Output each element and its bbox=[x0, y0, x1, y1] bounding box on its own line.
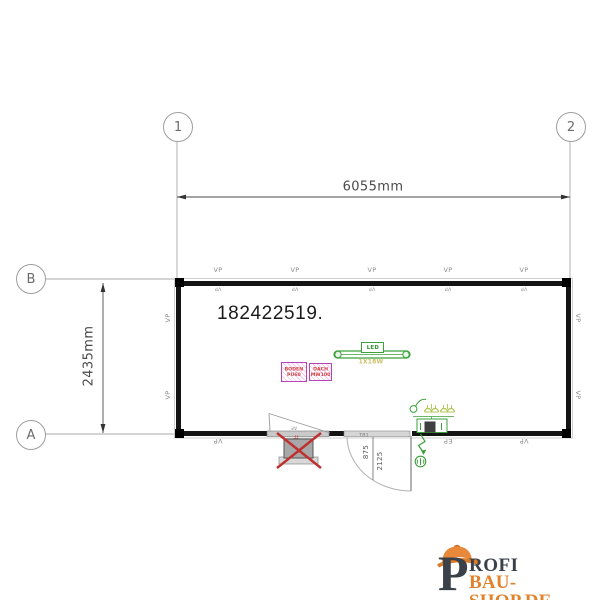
grid-label-A: A bbox=[27, 428, 36, 443]
dim-arrow-top bbox=[101, 283, 106, 292]
grid-label-B: B bbox=[27, 272, 36, 287]
socket-icons bbox=[425, 404, 455, 412]
wall-panel-label: VP bbox=[368, 266, 377, 274]
logo-domain: BAU-SHOP.DE bbox=[469, 573, 597, 600]
shop-logo: P ROFI BAU-SHOP.DE bbox=[435, 542, 597, 600]
window-tag: AF bbox=[291, 425, 297, 431]
grid-label-2: 2 bbox=[567, 120, 575, 135]
wall-panel-label-inner: VP bbox=[445, 286, 451, 292]
grid-bubble-2: 2 bbox=[556, 112, 586, 142]
wall-panel-label-inner: VP bbox=[521, 286, 527, 292]
wall-panel-label: VP bbox=[214, 266, 223, 274]
grid-bubble-1: 1 bbox=[163, 112, 193, 142]
wall-panel-label-inner: VP bbox=[369, 286, 375, 292]
earth-symbol-icon bbox=[415, 456, 426, 467]
wall-panel-label: VP bbox=[574, 391, 582, 400]
wall-panel-label: VP bbox=[520, 266, 529, 274]
logo-initial: P bbox=[438, 548, 469, 598]
order-number: 182422519. bbox=[217, 303, 323, 325]
led-label: LED bbox=[366, 344, 378, 350]
grid-bubble-A: A bbox=[16, 420, 46, 450]
switch-icon bbox=[410, 399, 426, 412]
wall-panel-label-inner: VP bbox=[215, 286, 221, 292]
grid-lines bbox=[44, 140, 570, 434]
roof-spec-line2: MW100 bbox=[311, 372, 331, 377]
electrical-panel-label: EP bbox=[444, 437, 453, 445]
width-dimension-text: 6055mm bbox=[343, 180, 404, 195]
door-tag: TB1 bbox=[359, 432, 369, 438]
roof-spec-box: DACH MW100 bbox=[309, 363, 332, 381]
dim-arrow-bottom bbox=[101, 424, 106, 433]
wall-panel-label-inner: VP bbox=[292, 286, 298, 292]
wall-panel-label: VP bbox=[214, 437, 223, 445]
dim-arrow-right bbox=[561, 195, 570, 200]
plan-linework bbox=[0, 0, 600, 600]
grid-bubble-B: B bbox=[16, 264, 46, 294]
height-dimension-text: 2435mm bbox=[82, 326, 97, 387]
door-width-text: 875 bbox=[362, 445, 370, 459]
wall-panel-label: VP bbox=[164, 314, 172, 323]
grid-label-1: 1 bbox=[174, 120, 182, 135]
power-feed-icon bbox=[419, 434, 427, 455]
floor-spec-line2: PU60 bbox=[285, 372, 304, 377]
led-label-box: LED bbox=[361, 342, 384, 353]
distribution-box-icon bbox=[417, 419, 447, 433]
wall-panel-label: VP bbox=[444, 266, 453, 274]
led-code: 1X18W bbox=[359, 359, 384, 366]
wall-panel-label: VP bbox=[520, 437, 529, 445]
floor-plan-drawing: 1 2 B A 6055mm 2435mm 182422519. VP VP V… bbox=[0, 0, 600, 600]
wall-panel-label: VP bbox=[164, 391, 172, 400]
floor-spec-box: BODEN PU60 bbox=[281, 362, 307, 382]
dim-arrow-left bbox=[177, 195, 186, 200]
window-tilt-symbol bbox=[269, 414, 330, 434]
door-height-text: 2125 bbox=[376, 451, 384, 470]
wall-panel-label: VP bbox=[291, 266, 300, 274]
wall-panel-label: VP bbox=[574, 314, 582, 323]
removed-window-tag: FF bbox=[294, 433, 299, 438]
